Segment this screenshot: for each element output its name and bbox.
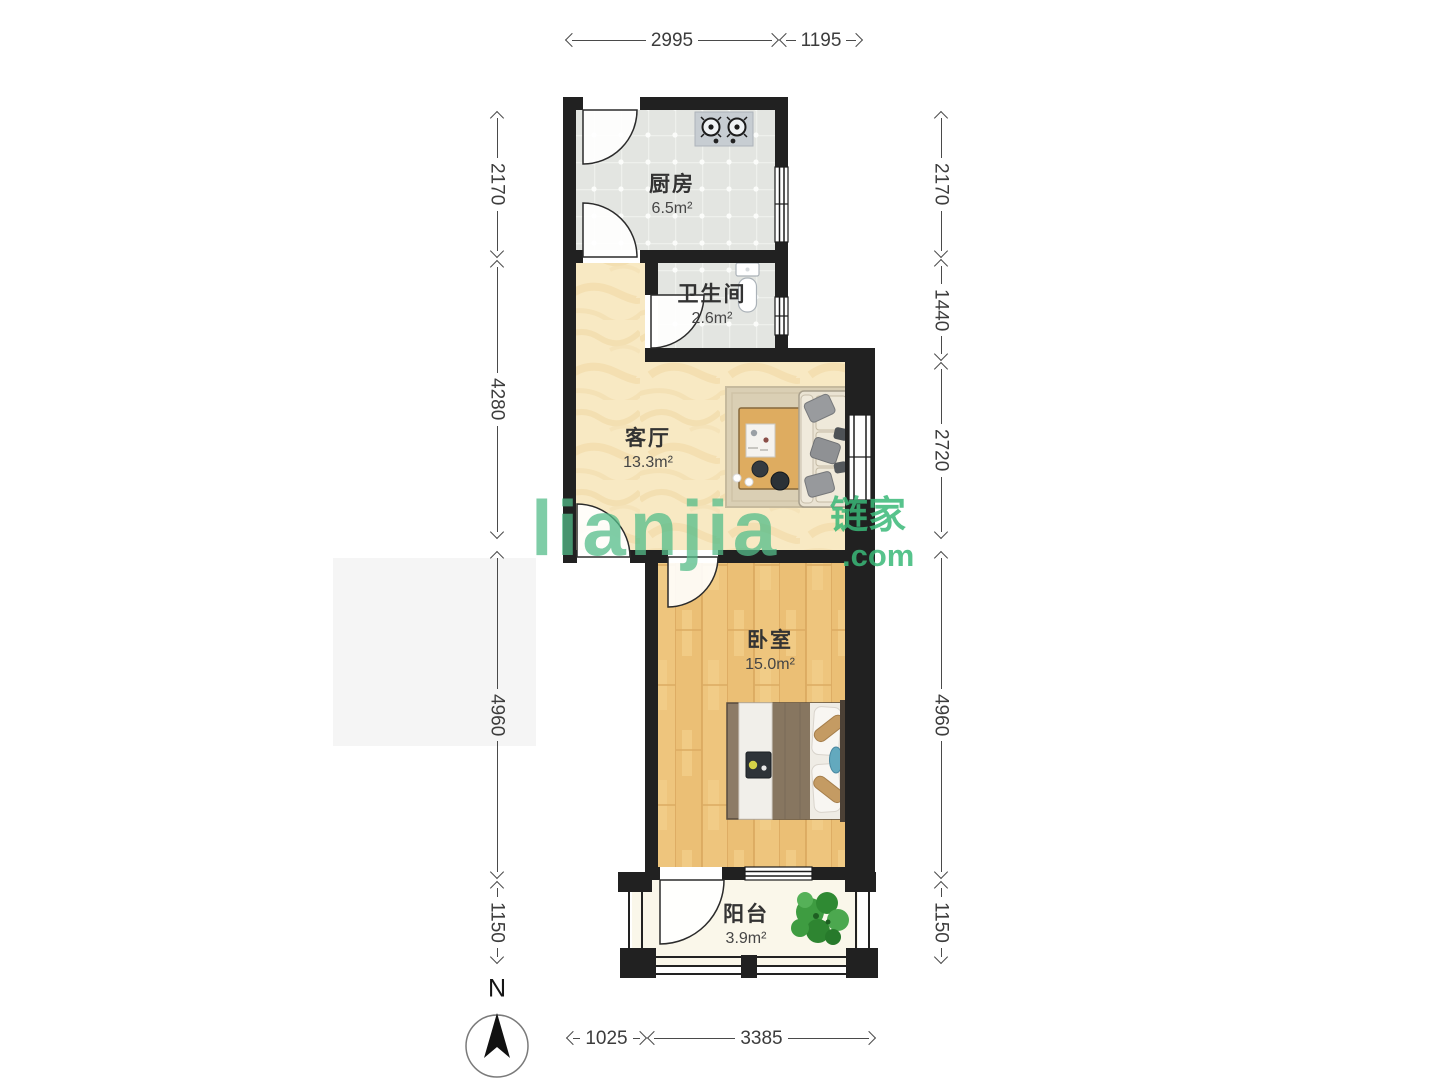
lianjia-watermark-tld: .com [842,540,914,571]
dim-top-2: 1195 [781,32,861,48]
dim-bottom-2: 3385 [649,1030,874,1046]
livingroom-window [845,415,875,500]
dim-value: 1150 [488,897,507,948]
room-area: 2.6m² [678,310,747,328]
dim-value: 4280 [488,373,507,425]
dim-value: 1440 [932,284,951,336]
dim-value: 4960 [932,689,951,741]
room-area: 3.9m² [723,930,769,948]
dim-right-1: 2170 [933,113,949,256]
dim-right-2: 1440 [933,261,949,359]
dim-value: 3385 [735,1029,787,1048]
dim-value: 2170 [488,158,507,210]
dim-left-2: 4280 [489,262,505,537]
room-name: 卧室 [745,629,795,653]
compass-north-label: N [488,975,506,1004]
room-label-balcony: 阳台 3.9m² [723,903,769,949]
dim-right-5: 1150 [933,883,949,962]
dim-value: 2995 [646,31,698,50]
room-label-bathroom: 卫生间 2.6m² [678,283,747,329]
sofa [799,391,853,507]
room-area: 13.3m² [623,454,673,472]
dim-bottom-1: 1025 [568,1030,645,1046]
dim-right-3: 2720 [933,364,949,537]
dim-value: 4960 [488,689,507,741]
room-area: 6.5m² [649,200,695,218]
room-name: 阳台 [723,903,769,927]
dim-value: 2720 [932,424,951,476]
dim-value: 1025 [580,1029,632,1048]
bedroom-balcony-window [745,867,812,880]
floorplan-page: 厨房 6.5m² 卫生间 2.6m² 客厅 13.3m² 卧室 15.0m² 阳… [0,0,1440,1080]
dim-value: 2170 [932,158,951,210]
dim-left-3: 4960 [489,553,505,877]
dim-top-1: 2995 [567,32,777,48]
dim-left-1: 2170 [489,113,505,256]
kitchen-window [775,167,788,242]
compass [466,1013,528,1077]
room-label-kitchen: 厨房 6.5m² [649,173,695,219]
bathroom-window [775,297,788,335]
compass-needle [484,1013,510,1058]
room-area: 15.0m² [745,656,795,674]
kitchen-stove [695,112,753,146]
coffee-table [733,408,801,490]
room-label-livingroom: 客厅 13.3m² [623,427,673,473]
lianjia-watermark-cjk: 链家 [830,497,906,535]
room-label-bedroom: 卧室 15.0m² [745,629,795,675]
bed [727,700,847,822]
dim-value: 1150 [932,897,951,948]
dim-right-4: 4960 [933,553,949,877]
dim-value: 1195 [796,31,847,50]
lianjia-watermark-logo: lianjia [531,489,780,567]
room-name: 厨房 [649,173,695,197]
dim-left-4: 1150 [489,883,505,962]
room-name: 客厅 [623,427,673,451]
room-name: 卫生间 [678,283,747,307]
